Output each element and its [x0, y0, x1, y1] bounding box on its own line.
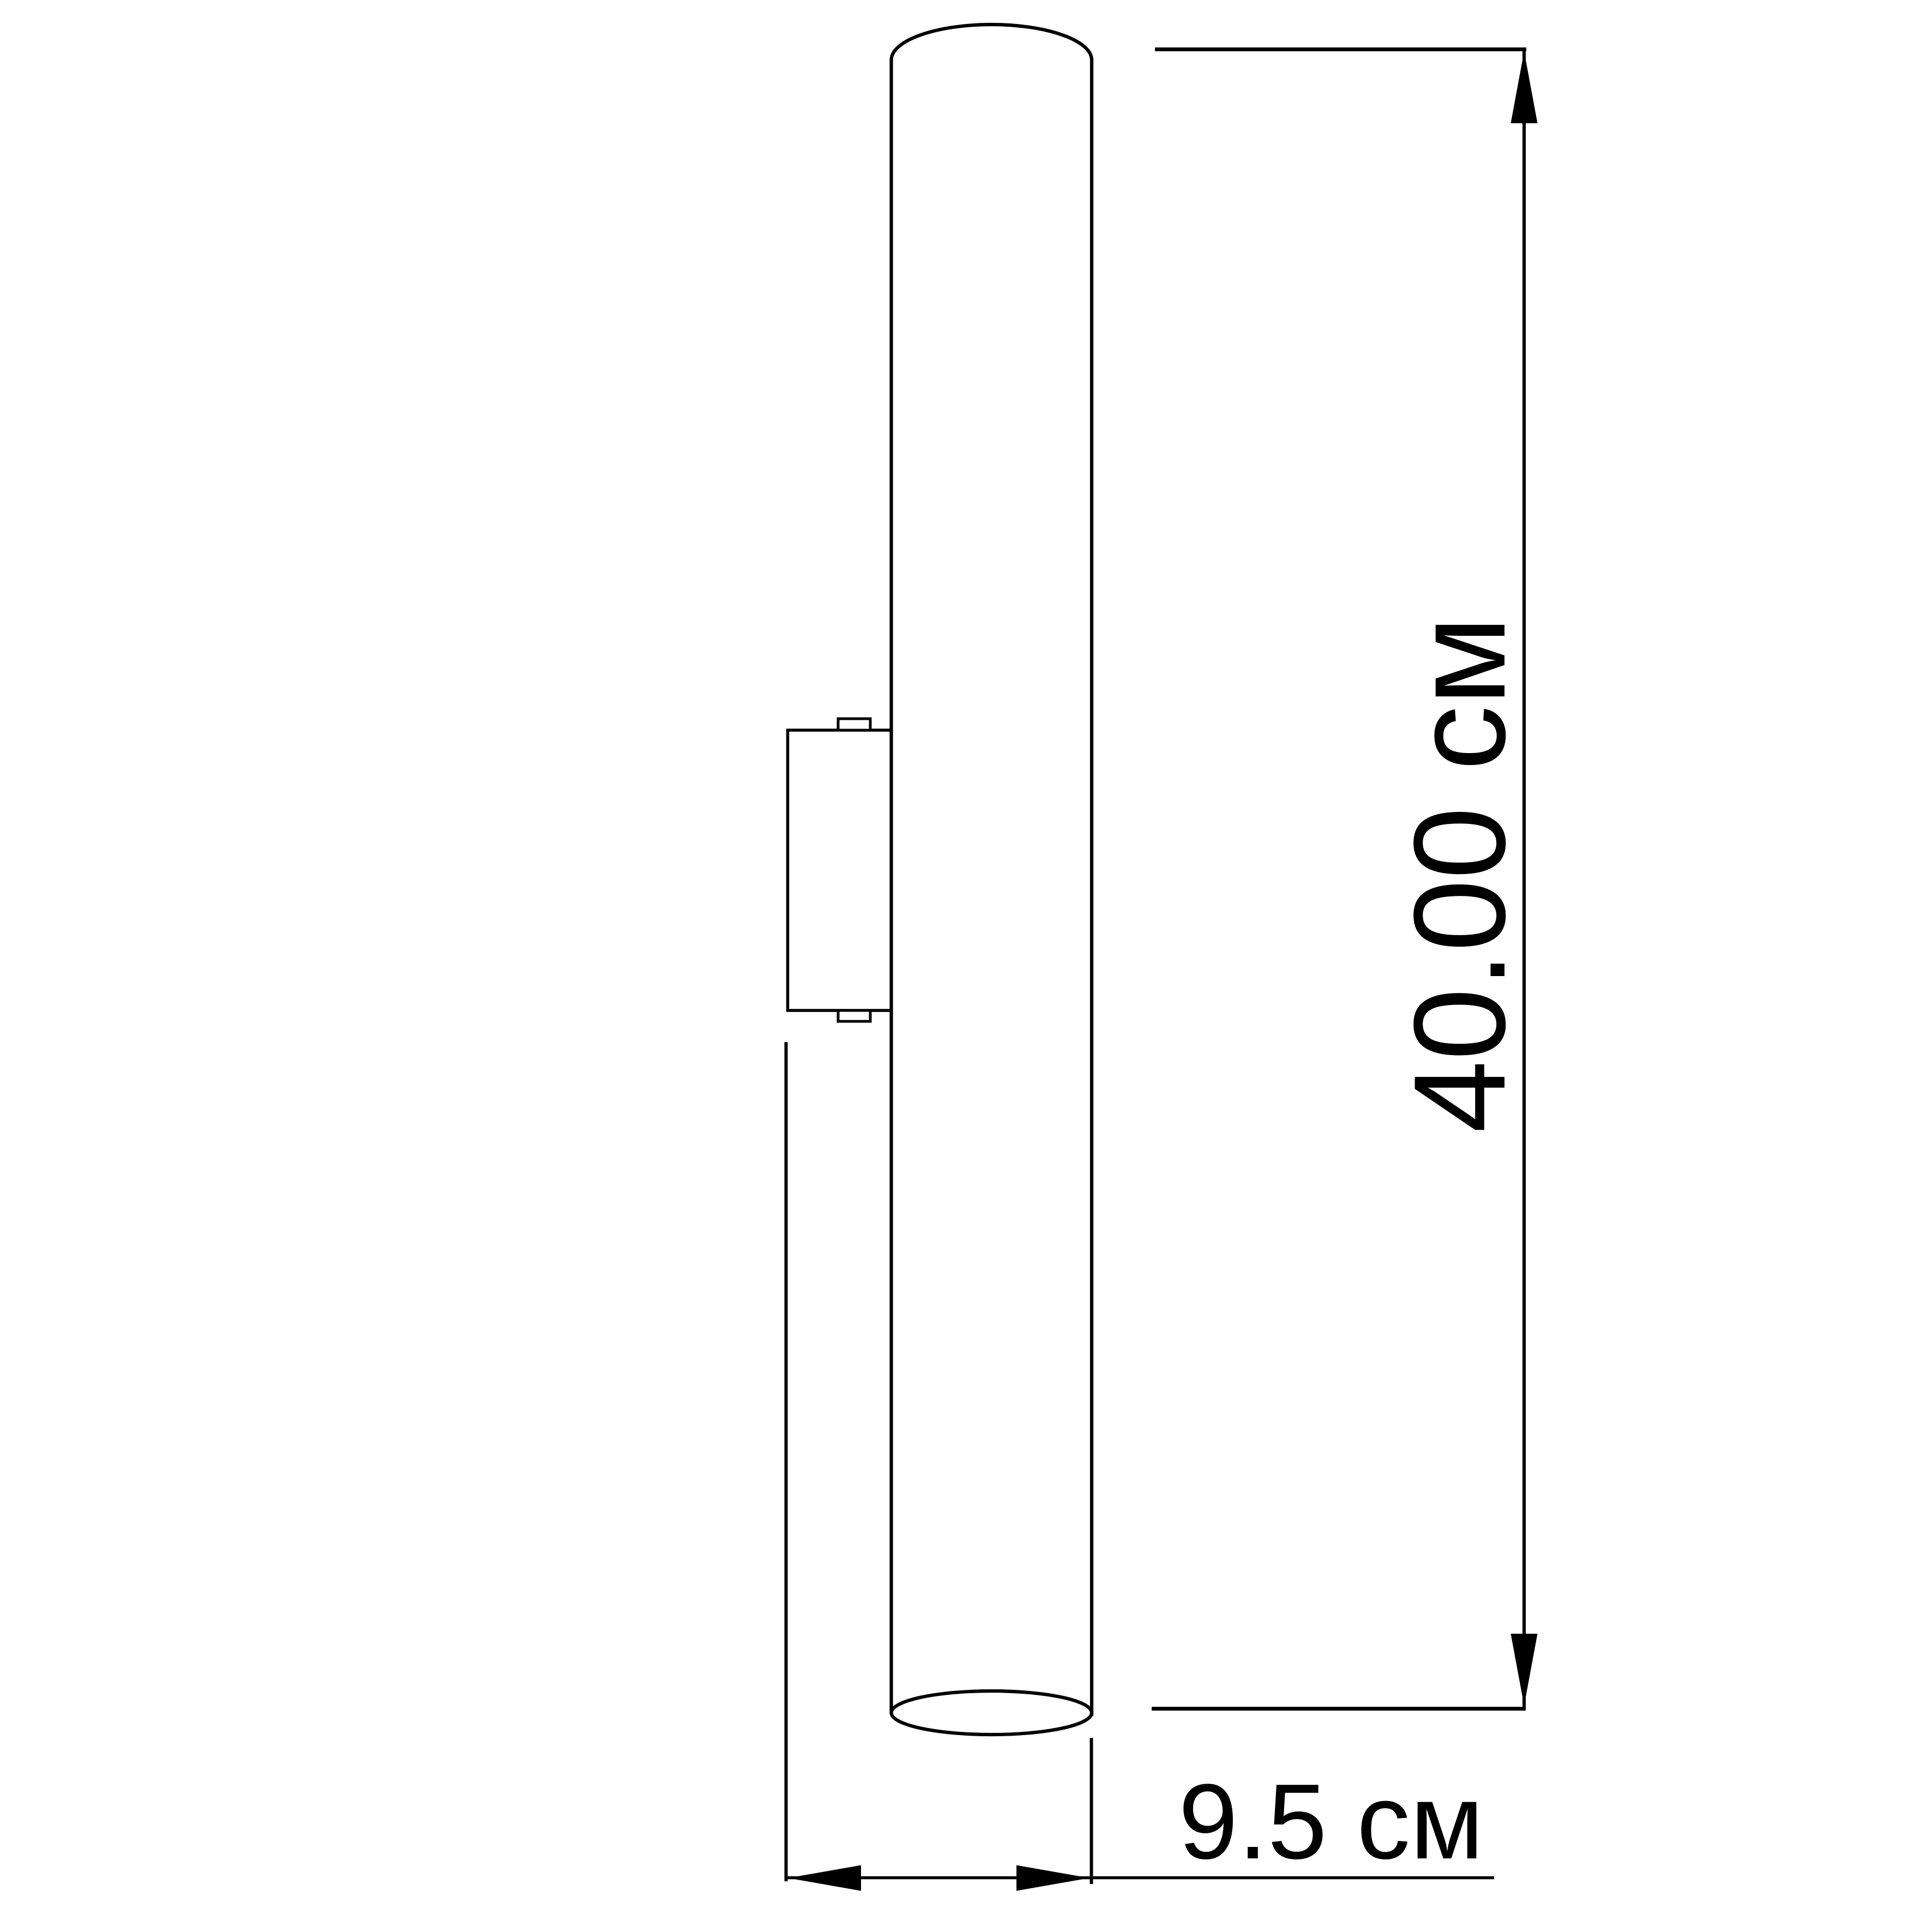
svg-text:40.00 см: 40.00 см — [1387, 616, 1532, 1133]
svg-text:9.5 см: 9.5 см — [1178, 1762, 1484, 1881]
